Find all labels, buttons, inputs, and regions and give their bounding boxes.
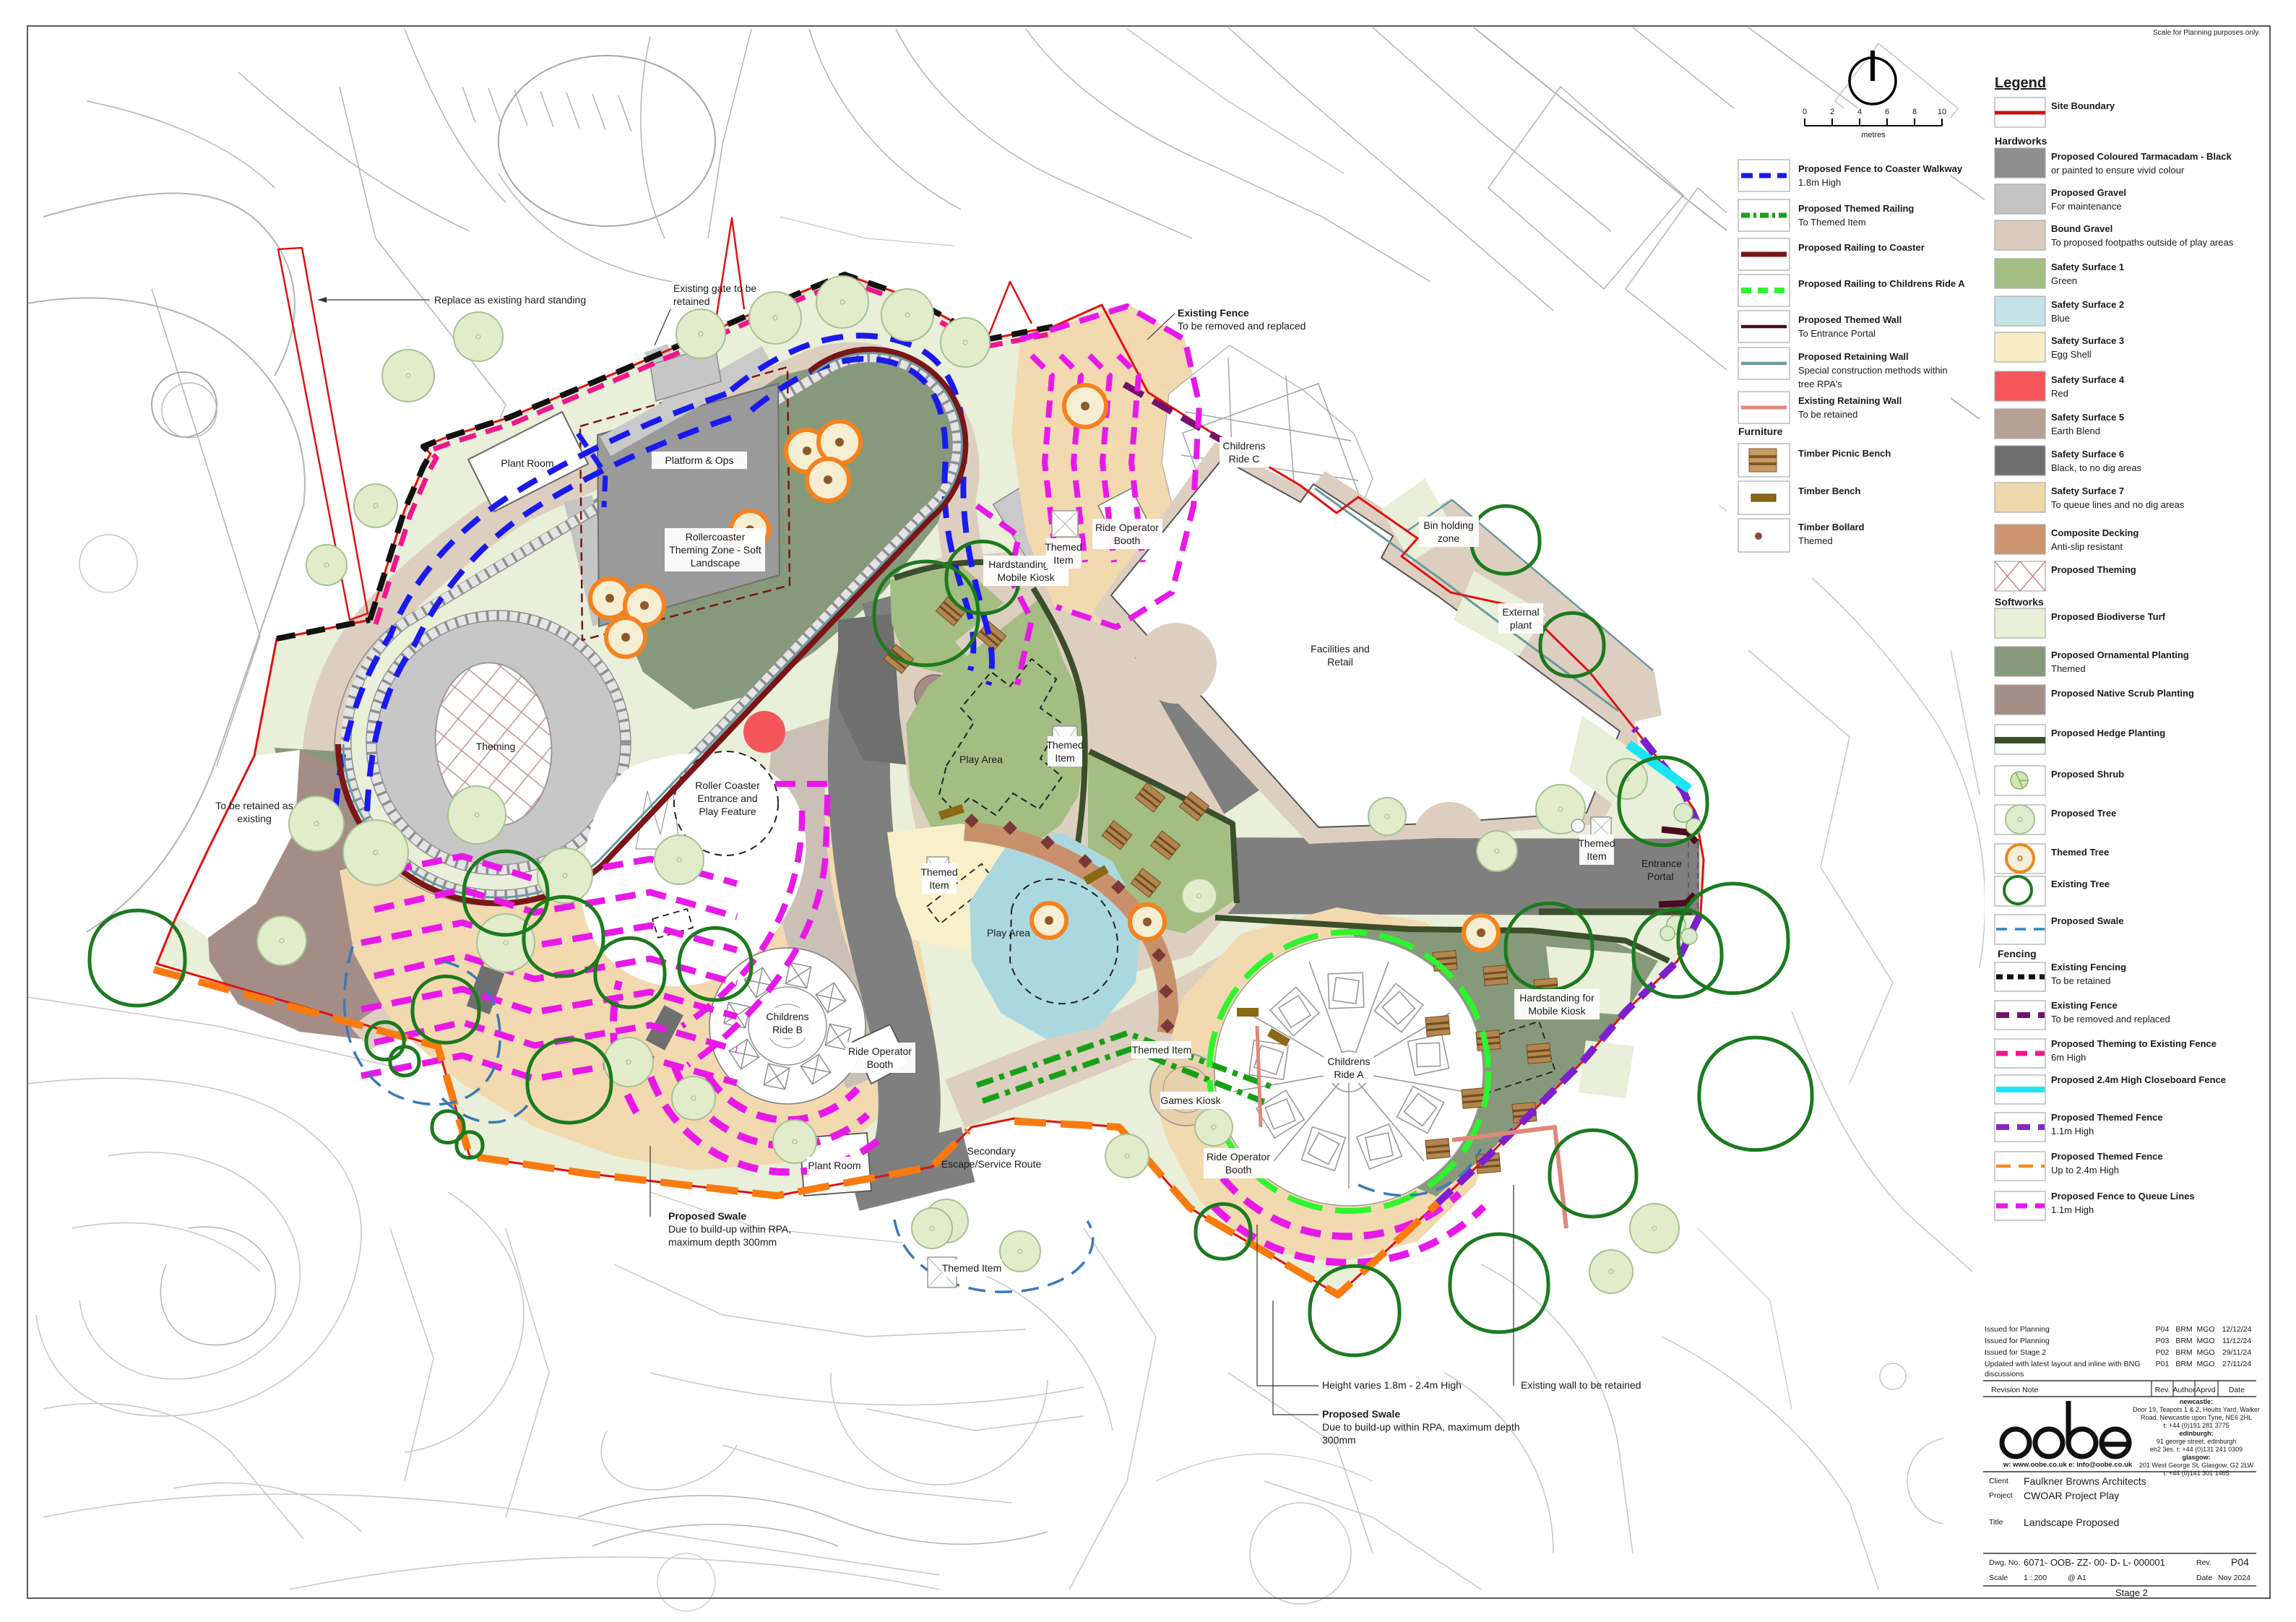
svg-text:To queue lines and no dig area: To queue lines and no dig areas	[2051, 499, 2185, 510]
svg-text:Proposed Biodiverse Turf: Proposed Biodiverse Turf	[2051, 611, 2166, 622]
svg-text:Scale for Planning purposes on: Scale for Planning purposes only.	[2153, 29, 2260, 37]
svg-text:Timber Bench: Timber Bench	[1798, 486, 1861, 496]
svg-text:w: www.oobe.co.uk e: info@oob: w: www.oobe.co.uk e: info@oobe.co.uk	[2003, 1461, 2133, 1469]
svg-text:91 george street, edinburgh: 91 george street, edinburgh	[2157, 1438, 2237, 1445]
svg-text:For maintenance: For maintenance	[2051, 201, 2122, 212]
svg-text:4: 4	[1857, 108, 1862, 116]
svg-text:Childrens: Childrens	[1327, 1056, 1370, 1067]
svg-text:Item: Item	[1053, 554, 1073, 566]
svg-text:Issued for Planning: Issued for Planning	[1985, 1337, 2050, 1345]
svg-text:P01: P01	[2156, 1360, 2170, 1368]
svg-text:Mobile Kiosk: Mobile Kiosk	[997, 571, 1055, 583]
svg-text:201 West George St, Glasgow, G: 201 West George St, Glasgow, G2 2LW	[2139, 1462, 2254, 1469]
svg-text:t: +44 (0)141 301 1465: t: +44 (0)141 301 1465	[2163, 1470, 2229, 1477]
svg-text:Proposed Swale: Proposed Swale	[2051, 915, 2123, 926]
svg-text:Item: Item	[929, 879, 949, 891]
svg-text:Proposed Swale: Proposed Swale	[668, 1210, 746, 1222]
svg-text:Title: Title	[1989, 1518, 2003, 1527]
svg-text:MGO: MGO	[2196, 1348, 2214, 1357]
svg-text:existing: existing	[237, 813, 271, 824]
svg-text:Item: Item	[1055, 752, 1074, 764]
svg-text:27/11/24: 27/11/24	[2222, 1360, 2251, 1368]
svg-text:8: 8	[1912, 108, 1917, 116]
svg-text:Plant Room: Plant Room	[808, 1160, 860, 1171]
svg-text:2: 2	[1830, 108, 1834, 116]
svg-text:Ride C: Ride C	[1229, 453, 1260, 465]
svg-text:Existing Fence: Existing Fence	[1178, 307, 1249, 319]
svg-text:Rev.: Rev.	[2196, 1558, 2211, 1567]
svg-text:Ride A: Ride A	[1334, 1069, 1364, 1080]
svg-text:tree RPA's: tree RPA's	[1798, 379, 1842, 389]
svg-text:Timber Picnic Bench: Timber Picnic Bench	[1798, 448, 1891, 459]
svg-text:6m High: 6m High	[2051, 1052, 2086, 1063]
svg-text:Door 19, Teapots 1 & 2, Hoults: Door 19, Teapots 1 & 2, Hoults Yard, Wal…	[2133, 1406, 2260, 1413]
svg-text:Proposed Swale: Proposed Swale	[1322, 1408, 1400, 1420]
svg-text:Anti-slip resistant: Anti-slip resistant	[2051, 541, 2123, 552]
svg-text:Ride Operator: Ride Operator	[1207, 1151, 1270, 1162]
svg-text:Egg Shell: Egg Shell	[2051, 349, 2092, 360]
svg-text:@ A1: @ A1	[2068, 1574, 2086, 1582]
svg-text:Proposed Themed Railing: Proposed Themed Railing	[1798, 203, 1914, 214]
svg-text:External: External	[1502, 606, 1539, 618]
svg-text:To be removed and replaced: To be removed and replaced	[1178, 320, 1305, 332]
svg-text:MGO: MGO	[2196, 1360, 2214, 1368]
svg-text:Landscape Proposed: Landscape Proposed	[2024, 1517, 2119, 1528]
svg-text:Softworks: Softworks	[1995, 596, 2044, 608]
svg-text:Portal: Portal	[1647, 871, 1674, 882]
svg-text:Proposed Retaining Wall: Proposed Retaining Wall	[1798, 351, 1909, 362]
svg-text:Themed: Themed	[2051, 663, 2086, 674]
svg-text:Site Boundary: Site Boundary	[2051, 100, 2115, 111]
svg-text:Bound Gravel: Bound Gravel	[2051, 223, 2112, 234]
svg-text:Rollercoaster: Rollercoaster	[686, 531, 746, 543]
svg-text:To be retained: To be retained	[1798, 409, 1857, 420]
svg-text:Up to 2.4m High: Up to 2.4m High	[2051, 1165, 2119, 1175]
svg-text:Black, to no dig areas: Black, to no dig areas	[2051, 462, 2142, 473]
svg-text:Stage 2: Stage 2	[2115, 1587, 2148, 1598]
svg-text:P04: P04	[2156, 1325, 2170, 1334]
svg-text:To Entrance Portal: To Entrance Portal	[1798, 328, 1876, 339]
svg-text:Themed: Themed	[1578, 837, 1615, 849]
svg-text:Entrance and: Entrance and	[697, 793, 757, 804]
svg-text:Proposed Railing to Childrens: Proposed Railing to Childrens Ride A	[1798, 278, 1965, 289]
svg-text:Item: Item	[1587, 850, 1606, 862]
svg-text:300mm: 300mm	[1322, 1434, 1356, 1446]
svg-text:Themed Item: Themed Item	[942, 1262, 1001, 1274]
svg-text:Existing wall to be retained: Existing wall to be retained	[1521, 1379, 1641, 1391]
svg-text:Themed: Themed	[1045, 541, 1082, 553]
svg-text:Childrens: Childrens	[766, 1011, 808, 1022]
svg-text:Proposed Native Scrub Planting: Proposed Native Scrub Planting	[2051, 688, 2194, 699]
svg-text:Existing Retaining Wall: Existing Retaining Wall	[1798, 395, 1902, 406]
svg-text:newcastle:: newcastle:	[2180, 1398, 2213, 1405]
svg-text:Theming: Theming	[476, 741, 515, 752]
svg-text:Booth: Booth	[1225, 1164, 1252, 1175]
svg-text:Themed: Themed	[920, 866, 957, 878]
svg-text:Proposed Tree: Proposed Tree	[2051, 808, 2116, 819]
svg-text:Issued for Stage 2: Issued for Stage 2	[1985, 1348, 2046, 1357]
svg-text:Furniture: Furniture	[1738, 426, 1783, 437]
svg-text:To be retained as: To be retained as	[215, 800, 293, 811]
svg-text:Proposed Shrub: Proposed Shrub	[2051, 769, 2124, 780]
svg-text:11/12/24: 11/12/24	[2222, 1337, 2251, 1345]
svg-text:eh2 3es. t: +44 (0)131 241 030: eh2 3es. t: +44 (0)131 241 0309	[2150, 1446, 2243, 1453]
svg-text:To Themed Item: To Themed Item	[1798, 217, 1866, 228]
svg-text:Green: Green	[2051, 275, 2077, 286]
svg-text:10: 10	[1938, 108, 1946, 116]
svg-text:Existing Fence: Existing Fence	[2051, 1000, 2118, 1011]
svg-text:Date: Date	[2196, 1574, 2212, 1582]
svg-text:Games Kiosk: Games Kiosk	[1160, 1095, 1221, 1106]
svg-text:Retail: Retail	[1327, 656, 1353, 668]
svg-text:Existing Tree: Existing Tree	[2051, 879, 2110, 889]
svg-text:or painted to ensure vivid col: or painted to ensure vivid colour	[2051, 165, 2185, 176]
svg-text:Safety Surface 2: Safety Surface 2	[2051, 299, 2124, 310]
svg-text:Entrance: Entrance	[1641, 858, 1682, 869]
svg-text:Height varies 1.8m - 2.4m High: Height varies 1.8m - 2.4m High	[1322, 1379, 1462, 1391]
svg-text:Proposed Themed Wall: Proposed Themed Wall	[1798, 314, 1902, 325]
svg-text:Aprvd: Aprvd	[2196, 1386, 2216, 1394]
svg-text:P03: P03	[2156, 1337, 2170, 1345]
svg-text:Facilities and: Facilities and	[1311, 643, 1370, 655]
svg-text:Project: Project	[1989, 1491, 2013, 1500]
svg-text:CWOAR Project Play: CWOAR Project Play	[2024, 1490, 2119, 1501]
svg-text:Existing Fencing: Existing Fencing	[2051, 962, 2126, 972]
svg-text:Safety Surface 5: Safety Surface 5	[2051, 412, 2124, 423]
svg-text:Mobile Kiosk: Mobile Kiosk	[1528, 1005, 1586, 1017]
svg-text:Ride Operator: Ride Operator	[848, 1045, 912, 1057]
svg-text:Proposed Fence to Coaster Walk: Proposed Fence to Coaster Walkway	[1798, 163, 1963, 174]
svg-text:retained: retained	[673, 296, 710, 307]
svg-text:plant: plant	[1510, 619, 1532, 631]
svg-text:Themed: Themed	[1798, 535, 1833, 546]
svg-text:Proposed Gravel: Proposed Gravel	[2051, 187, 2126, 198]
svg-text:Safety Surface 7: Safety Surface 7	[2051, 486, 2124, 496]
svg-text:Proposed Fence to Queue Lines: Proposed Fence to Queue Lines	[2051, 1191, 2195, 1202]
svg-text:29/11/24: 29/11/24	[2222, 1348, 2251, 1357]
svg-text:6: 6	[1885, 108, 1889, 116]
svg-text:MGO: MGO	[2196, 1337, 2214, 1345]
svg-text:Play Area: Play Area	[987, 927, 1030, 939]
svg-text:MGO: MGO	[2196, 1325, 2214, 1334]
svg-text:Existing gate to be: Existing gate to be	[673, 282, 756, 294]
svg-text:Road, Newcastle upon Tyne, NE6: Road, Newcastle upon Tyne, NE6 2HL	[2141, 1414, 2252, 1421]
svg-text:Scale: Scale	[1989, 1574, 2008, 1582]
svg-text:Proposed Theming: Proposed Theming	[2051, 564, 2136, 575]
svg-text:Roller Coaster: Roller Coaster	[695, 780, 760, 791]
svg-text:Bin holding: Bin holding	[1423, 519, 1473, 531]
svg-text:maximum depth 300mm: maximum depth 300mm	[668, 1236, 777, 1248]
svg-text:t: +44 (0)191 281 3775: t: +44 (0)191 281 3775	[2163, 1422, 2229, 1429]
svg-text:Proposed Hedge Planting: Proposed Hedge Planting	[2051, 728, 2165, 738]
svg-text:Booth: Booth	[1114, 535, 1141, 546]
svg-text:Ride Operator: Ride Operator	[1095, 522, 1159, 533]
svg-text:Themed: Themed	[1046, 739, 1083, 751]
svg-text:Timber Bollard: Timber Bollard	[1798, 522, 1865, 532]
svg-text:Proposed Themed Fence: Proposed Themed Fence	[2051, 1151, 2163, 1162]
svg-text:edinburgh:: edinburgh:	[2180, 1430, 2214, 1437]
svg-text:Platform & Ops: Platform & Ops	[665, 454, 734, 466]
svg-text:Childrens: Childrens	[1222, 440, 1265, 452]
svg-text:Revision Note: Revision Note	[1991, 1386, 2039, 1394]
svg-text:Safety Surface 3: Safety Surface 3	[2051, 335, 2124, 346]
svg-text:6071- OOB- ZZ- 00- D- L- 00000: 6071- OOB- ZZ- 00- D- L- 000001	[2024, 1557, 2165, 1568]
svg-text:Dwg. No.: Dwg. No.	[1989, 1558, 2020, 1567]
svg-text:Proposed Coloured Tarmacadam -: Proposed Coloured Tarmacadam - Black	[2051, 151, 2232, 162]
svg-text:Landscape: Landscape	[691, 557, 741, 569]
svg-text:Themed Tree: Themed Tree	[2051, 847, 2109, 858]
svg-text:BRM: BRM	[2175, 1337, 2192, 1345]
svg-text:Date: Date	[2229, 1386, 2245, 1394]
svg-text:Plant Room: Plant Room	[501, 457, 553, 469]
svg-text:glasgow:: glasgow:	[2182, 1454, 2210, 1461]
svg-text:To be removed and replaced: To be removed and replaced	[2051, 1014, 2170, 1024]
svg-text:Replace as existing hard stand: Replace as existing hard standing	[434, 294, 586, 306]
svg-text:P04: P04	[2231, 1556, 2249, 1568]
svg-text:discussions: discussions	[1985, 1370, 2024, 1379]
svg-text:Blue: Blue	[2051, 313, 2070, 324]
svg-text:Proposed Themed Fence: Proposed Themed Fence	[2051, 1112, 2163, 1123]
svg-text:1 : 200: 1 : 200	[2024, 1574, 2047, 1582]
svg-text:Play Feature: Play Feature	[699, 806, 756, 817]
svg-text:Due to build-up within RPA,: Due to build-up within RPA,	[668, 1223, 791, 1235]
svg-text:Earth Blend: Earth Blend	[2051, 426, 2100, 436]
svg-text:BRM: BRM	[2175, 1348, 2192, 1357]
svg-text:To be retained: To be retained	[2051, 975, 2110, 986]
svg-text:Due to build-up within RPA, ma: Due to build-up within RPA, maximum dept…	[1322, 1421, 1520, 1433]
svg-text:BRM: BRM	[2175, 1360, 2192, 1368]
svg-text:Red: Red	[2051, 388, 2068, 399]
svg-text:Special construction methods w: Special construction methods within	[1798, 365, 1948, 376]
svg-text:Proposed 2.4m High Closeboard: Proposed 2.4m High Closeboard Fence	[2051, 1074, 2226, 1085]
svg-text:1.8m High: 1.8m High	[1798, 177, 1841, 188]
svg-text:Legend: Legend	[1995, 75, 2046, 91]
svg-text:Issued for Planning: Issued for Planning	[1985, 1325, 2050, 1334]
svg-text:Updated with latest layout and: Updated with latest layout and inline wi…	[1985, 1360, 2140, 1368]
svg-text:Booth: Booth	[867, 1058, 894, 1070]
svg-text:1.1m High: 1.1m High	[2051, 1126, 2094, 1136]
svg-text:Secondary: Secondary	[967, 1145, 1016, 1157]
svg-text:metres: metres	[1861, 131, 1886, 139]
svg-text:Hardworks: Hardworks	[1995, 135, 2047, 147]
svg-text:Proposed Ornamental Planting: Proposed Ornamental Planting	[2051, 650, 2189, 660]
svg-text:Author: Author	[2173, 1386, 2196, 1394]
svg-text:Play Area: Play Area	[959, 754, 1003, 765]
svg-text:Safety Surface 6: Safety Surface 6	[2051, 449, 2124, 460]
svg-text:BRM: BRM	[2175, 1325, 2192, 1334]
svg-text:Proposed Railing to Coaster: Proposed Railing to Coaster	[1798, 242, 1925, 253]
svg-text:Themed Item: Themed Item	[1132, 1044, 1191, 1056]
svg-text:Fencing: Fencing	[1998, 948, 2037, 959]
svg-text:Composite Decking: Composite Decking	[2051, 527, 2139, 538]
svg-text:Safety Surface 4: Safety Surface 4	[2051, 374, 2125, 385]
svg-text:Rev.: Rev.	[2155, 1386, 2170, 1394]
svg-text:Client: Client	[1989, 1477, 2008, 1485]
svg-text:Faulkner Browns Architects: Faulkner Browns Architects	[2024, 1475, 2146, 1487]
svg-text:To proposed footpaths outside: To proposed footpaths outside of play ar…	[2051, 237, 2234, 248]
svg-text:Safety Surface 1: Safety Surface 1	[2051, 262, 2124, 272]
svg-text:1.1m High: 1.1m High	[2051, 1204, 2094, 1215]
svg-text:Ride B: Ride B	[772, 1024, 803, 1035]
svg-text:Escape/Service Route: Escape/Service Route	[941, 1158, 1042, 1170]
svg-text:12/12/24: 12/12/24	[2222, 1325, 2252, 1334]
svg-text:zone: zone	[1438, 532, 1460, 544]
svg-text:P02: P02	[2156, 1348, 2170, 1357]
svg-text:Nov 2024: Nov 2024	[2218, 1574, 2250, 1582]
svg-text:Theming Zone - Soft: Theming Zone - Soft	[669, 544, 761, 556]
svg-text:Proposed Theming to Existing F: Proposed Theming to Existing Fence	[2051, 1038, 2217, 1049]
svg-text:Hardstanding for: Hardstanding for	[1519, 992, 1594, 1004]
svg-text:0: 0	[1803, 108, 1807, 116]
